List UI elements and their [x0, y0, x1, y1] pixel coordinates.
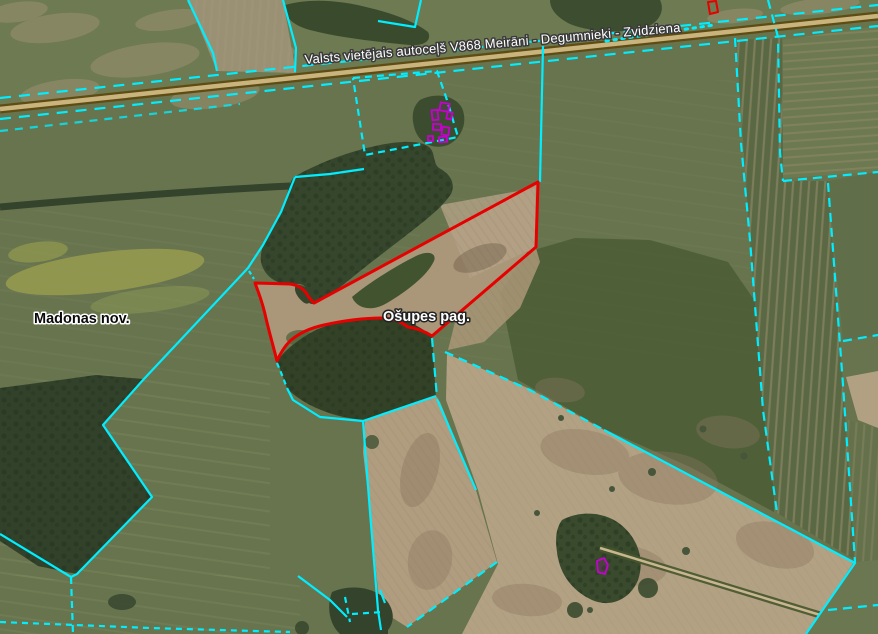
row-field-top-right-texture	[783, 26, 878, 178]
parish-label: Ošupes pag.	[383, 309, 470, 325]
map-canvas[interactable]: Valsts vietējais autoceļš V868 Meirāni -…	[0, 0, 878, 634]
tree-blob-left	[108, 594, 136, 610]
aerial-map: Valsts vietējais autoceļš V868 Meirāni -…	[0, 0, 878, 634]
building-footprint	[433, 124, 441, 130]
municipality-label: Madonas nov.	[34, 311, 130, 327]
building-footprint	[446, 112, 452, 120]
building-footprint	[597, 558, 608, 574]
building-footprint	[431, 110, 438, 121]
rows-bottom-left	[0, 575, 300, 634]
building-footprint	[439, 137, 447, 143]
tree-blob	[638, 578, 658, 598]
tree-dot	[365, 435, 379, 449]
tree-blob	[567, 602, 583, 618]
building-footprint	[439, 102, 449, 111]
building-footprint	[428, 136, 433, 141]
building-footprint	[441, 127, 449, 136]
